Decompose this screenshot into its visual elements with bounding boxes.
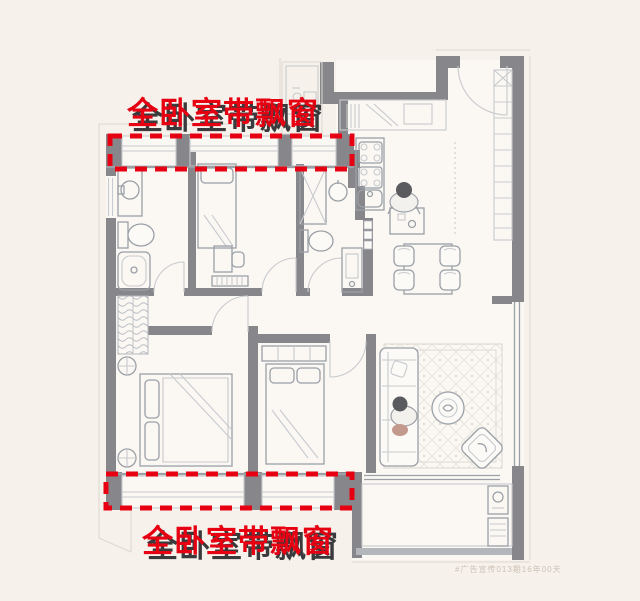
watermark-text: #广告宣传013期16年00天 [455, 564, 562, 575]
dining-chair-icon [394, 270, 414, 290]
dining-chair-icon [394, 246, 414, 266]
bottom-caption: 全卧室带飘窗 [142, 516, 334, 561]
coffee-table-icon [432, 392, 464, 424]
floorplan-image: 全卧室带飘窗 全卧室带飘窗 #广告宣传013期16年00天 [0, 0, 640, 601]
bathroom-window [106, 176, 116, 218]
floor-lamp-icon [118, 449, 136, 467]
wardrobe-icon [118, 296, 148, 354]
balcony-rail [356, 548, 512, 555]
dining-chair-icon [440, 246, 460, 266]
top-caption: 全卧室带飘窗 [127, 88, 319, 133]
floor-lamp-icon [118, 357, 136, 375]
living-room [380, 344, 505, 471]
dining-chair-icon [440, 270, 460, 290]
floorplan-svg [0, 0, 640, 601]
